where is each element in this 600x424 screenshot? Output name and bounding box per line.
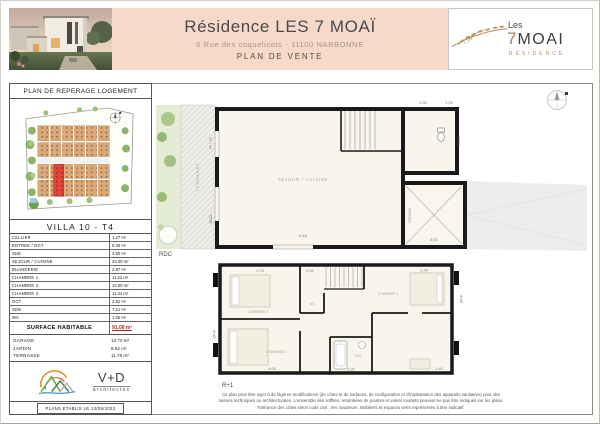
r1-dim-bottom-3: 2.40 bbox=[435, 367, 442, 371]
seuil-label-a: SEUIL bbox=[457, 136, 461, 145]
r1-floor-label: R+1 bbox=[222, 383, 234, 389]
plan-compass-icon bbox=[547, 90, 568, 110]
table-row: CELLIER1.27 m² bbox=[10, 234, 151, 242]
chambre2-label: CHAMBRE 2 bbox=[248, 310, 269, 314]
brand-residence: RÉSIDENCE bbox=[509, 52, 565, 57]
disclaimer-line-2: raisons techniques ou architecturales. L… bbox=[206, 398, 516, 404]
table-row: CHAMBRE 311.34 m² bbox=[10, 290, 151, 298]
architect-logos: V+D architectes bbox=[10, 362, 151, 402]
annex-row: TERRASSE11.76 m² bbox=[10, 352, 151, 360]
brand-seven: 7 bbox=[507, 30, 516, 47]
document-type: PLAN DE VENTE bbox=[237, 52, 324, 61]
r1-dim-top-2: 0.92 bbox=[306, 269, 313, 273]
chambre1-label: CHAMBRE 1 bbox=[378, 292, 399, 296]
sidebar-title: PLAN DE REPERAGE LOGEMENT bbox=[10, 84, 151, 99]
r1-dim-bottom-1: 4.00 bbox=[268, 367, 275, 371]
seuil-label-b: SEUIL bbox=[209, 214, 213, 223]
table-row: ENTREE / DGT5.36 m² bbox=[10, 242, 151, 250]
r1-dim-bottom-2: 1.97 bbox=[347, 368, 354, 372]
dim-top-a: 2.30 bbox=[419, 100, 428, 105]
terrace: TERRASSE bbox=[181, 105, 215, 249]
garden bbox=[156, 105, 181, 249]
vd-logo-name: V+D bbox=[93, 371, 130, 384]
r1-dim-top-1: 2.74 bbox=[256, 269, 263, 273]
sejour-label: SEJOUR / CUISINE bbox=[278, 177, 328, 182]
table-row: SDB7.21 m² bbox=[10, 306, 151, 314]
dim-garage: 5.00 bbox=[430, 237, 439, 242]
cf-right-label: CF+F bbox=[460, 295, 464, 303]
table-row: CHAMBRE 210.00 m² bbox=[10, 282, 151, 290]
r1-dim-top-3: 2.40 bbox=[420, 269, 427, 273]
annex-row: JARDIN8.52 m² bbox=[10, 345, 151, 353]
villa-label: VILLA 10 - T4 bbox=[10, 220, 151, 234]
plan-de-vente-page: Résidence LES 7 MOAÏ 6 Rue des coquelico… bbox=[0, 0, 600, 424]
table-row: DGT2.82 m² bbox=[10, 298, 151, 306]
dim-width: 6.18 bbox=[299, 233, 308, 238]
terrasse-label: TERRASSE bbox=[195, 162, 200, 192]
floor-plan-r1: CHAMBRE 2 CHAMBRE 1 CHAMBRE 3 SDB WC 2.7… bbox=[212, 259, 466, 391]
sidebar: PLAN DE REPERAGE LOGEMENT bbox=[9, 83, 152, 415]
highlighted-villa-unit bbox=[54, 164, 64, 196]
rdc-floor-label: RDC bbox=[159, 252, 173, 258]
surface-value: 91.00 m² bbox=[109, 322, 151, 334]
annex-areas: GARAGE13.70 m² JARDIN8.52 m² TERRASSE11.… bbox=[10, 335, 151, 362]
table-row: BUANDERIE2.87 m² bbox=[10, 266, 151, 274]
garage-label: GARAGE bbox=[408, 207, 412, 223]
house-render-image bbox=[9, 8, 112, 70]
plans-date-footer: PLANS ETABLIS LE 13/06/2023 bbox=[10, 402, 151, 414]
table-row: SEJOUR / CUISINE33.40 m² bbox=[10, 258, 151, 266]
table-row: CHAMBRE 111.22 m² bbox=[10, 274, 151, 282]
header-banner: Résidence LES 7 MOAÏ 6 Rue des coquelico… bbox=[112, 8, 448, 70]
disclaimer: Ce plan peut être sujet à de légères mod… bbox=[206, 392, 516, 411]
mountain-logo-icon bbox=[31, 366, 83, 398]
sdb-label: SDB bbox=[355, 354, 363, 358]
plans-date: PLANS ETABLIS LE 13/06/2023 bbox=[37, 403, 125, 414]
branch-icon bbox=[449, 14, 515, 64]
rdc-service-walls bbox=[403, 109, 457, 173]
pfcf-label: PF + CF bbox=[209, 137, 213, 149]
address: 6 Rue des coquelicots - 11100 NARBONNE bbox=[196, 40, 364, 49]
vd-logo-sub: architectes bbox=[93, 386, 130, 393]
surface-habitable-row: SURFACE HABITABLE 91.00 m² bbox=[10, 322, 151, 335]
wc-label: WC bbox=[309, 302, 315, 306]
toilet-icon bbox=[438, 128, 445, 141]
vd-architectes-logo: V+D architectes bbox=[93, 371, 130, 393]
surface-label: SURFACE HABITABLE bbox=[10, 325, 109, 331]
brand-moai: MOAI bbox=[517, 32, 564, 48]
site-pool bbox=[30, 198, 37, 203]
table-row: WC1.05 m² bbox=[10, 314, 151, 322]
brand-les: Les bbox=[508, 21, 565, 30]
room-area-table: CELLIER1.27 m² ENTREE / DGT5.36 m² SDE4.… bbox=[10, 234, 151, 322]
brand-logo: Les 7 MOAI RÉSIDENCE bbox=[448, 8, 593, 70]
page-title: Résidence LES 7 MOAÏ bbox=[184, 17, 376, 37]
table-row: SDE4.50 m² bbox=[10, 250, 151, 258]
annex-row: GARAGE13.70 m² bbox=[10, 337, 151, 345]
disclaimer-line-3: Tolérance des côtes selon code civil : 5… bbox=[206, 405, 516, 411]
dim-top-b: 1.00 bbox=[445, 100, 454, 105]
driveway bbox=[467, 181, 587, 251]
brand-text: Les 7 MOAI RÉSIDENCE bbox=[507, 21, 565, 57]
cf-left-label: CF+F bbox=[213, 330, 217, 338]
floor-plan-rdc: TERRASSE bbox=[153, 85, 593, 259]
chambre3-label: CHAMBRE 3 bbox=[266, 350, 287, 354]
site-map bbox=[10, 99, 151, 220]
